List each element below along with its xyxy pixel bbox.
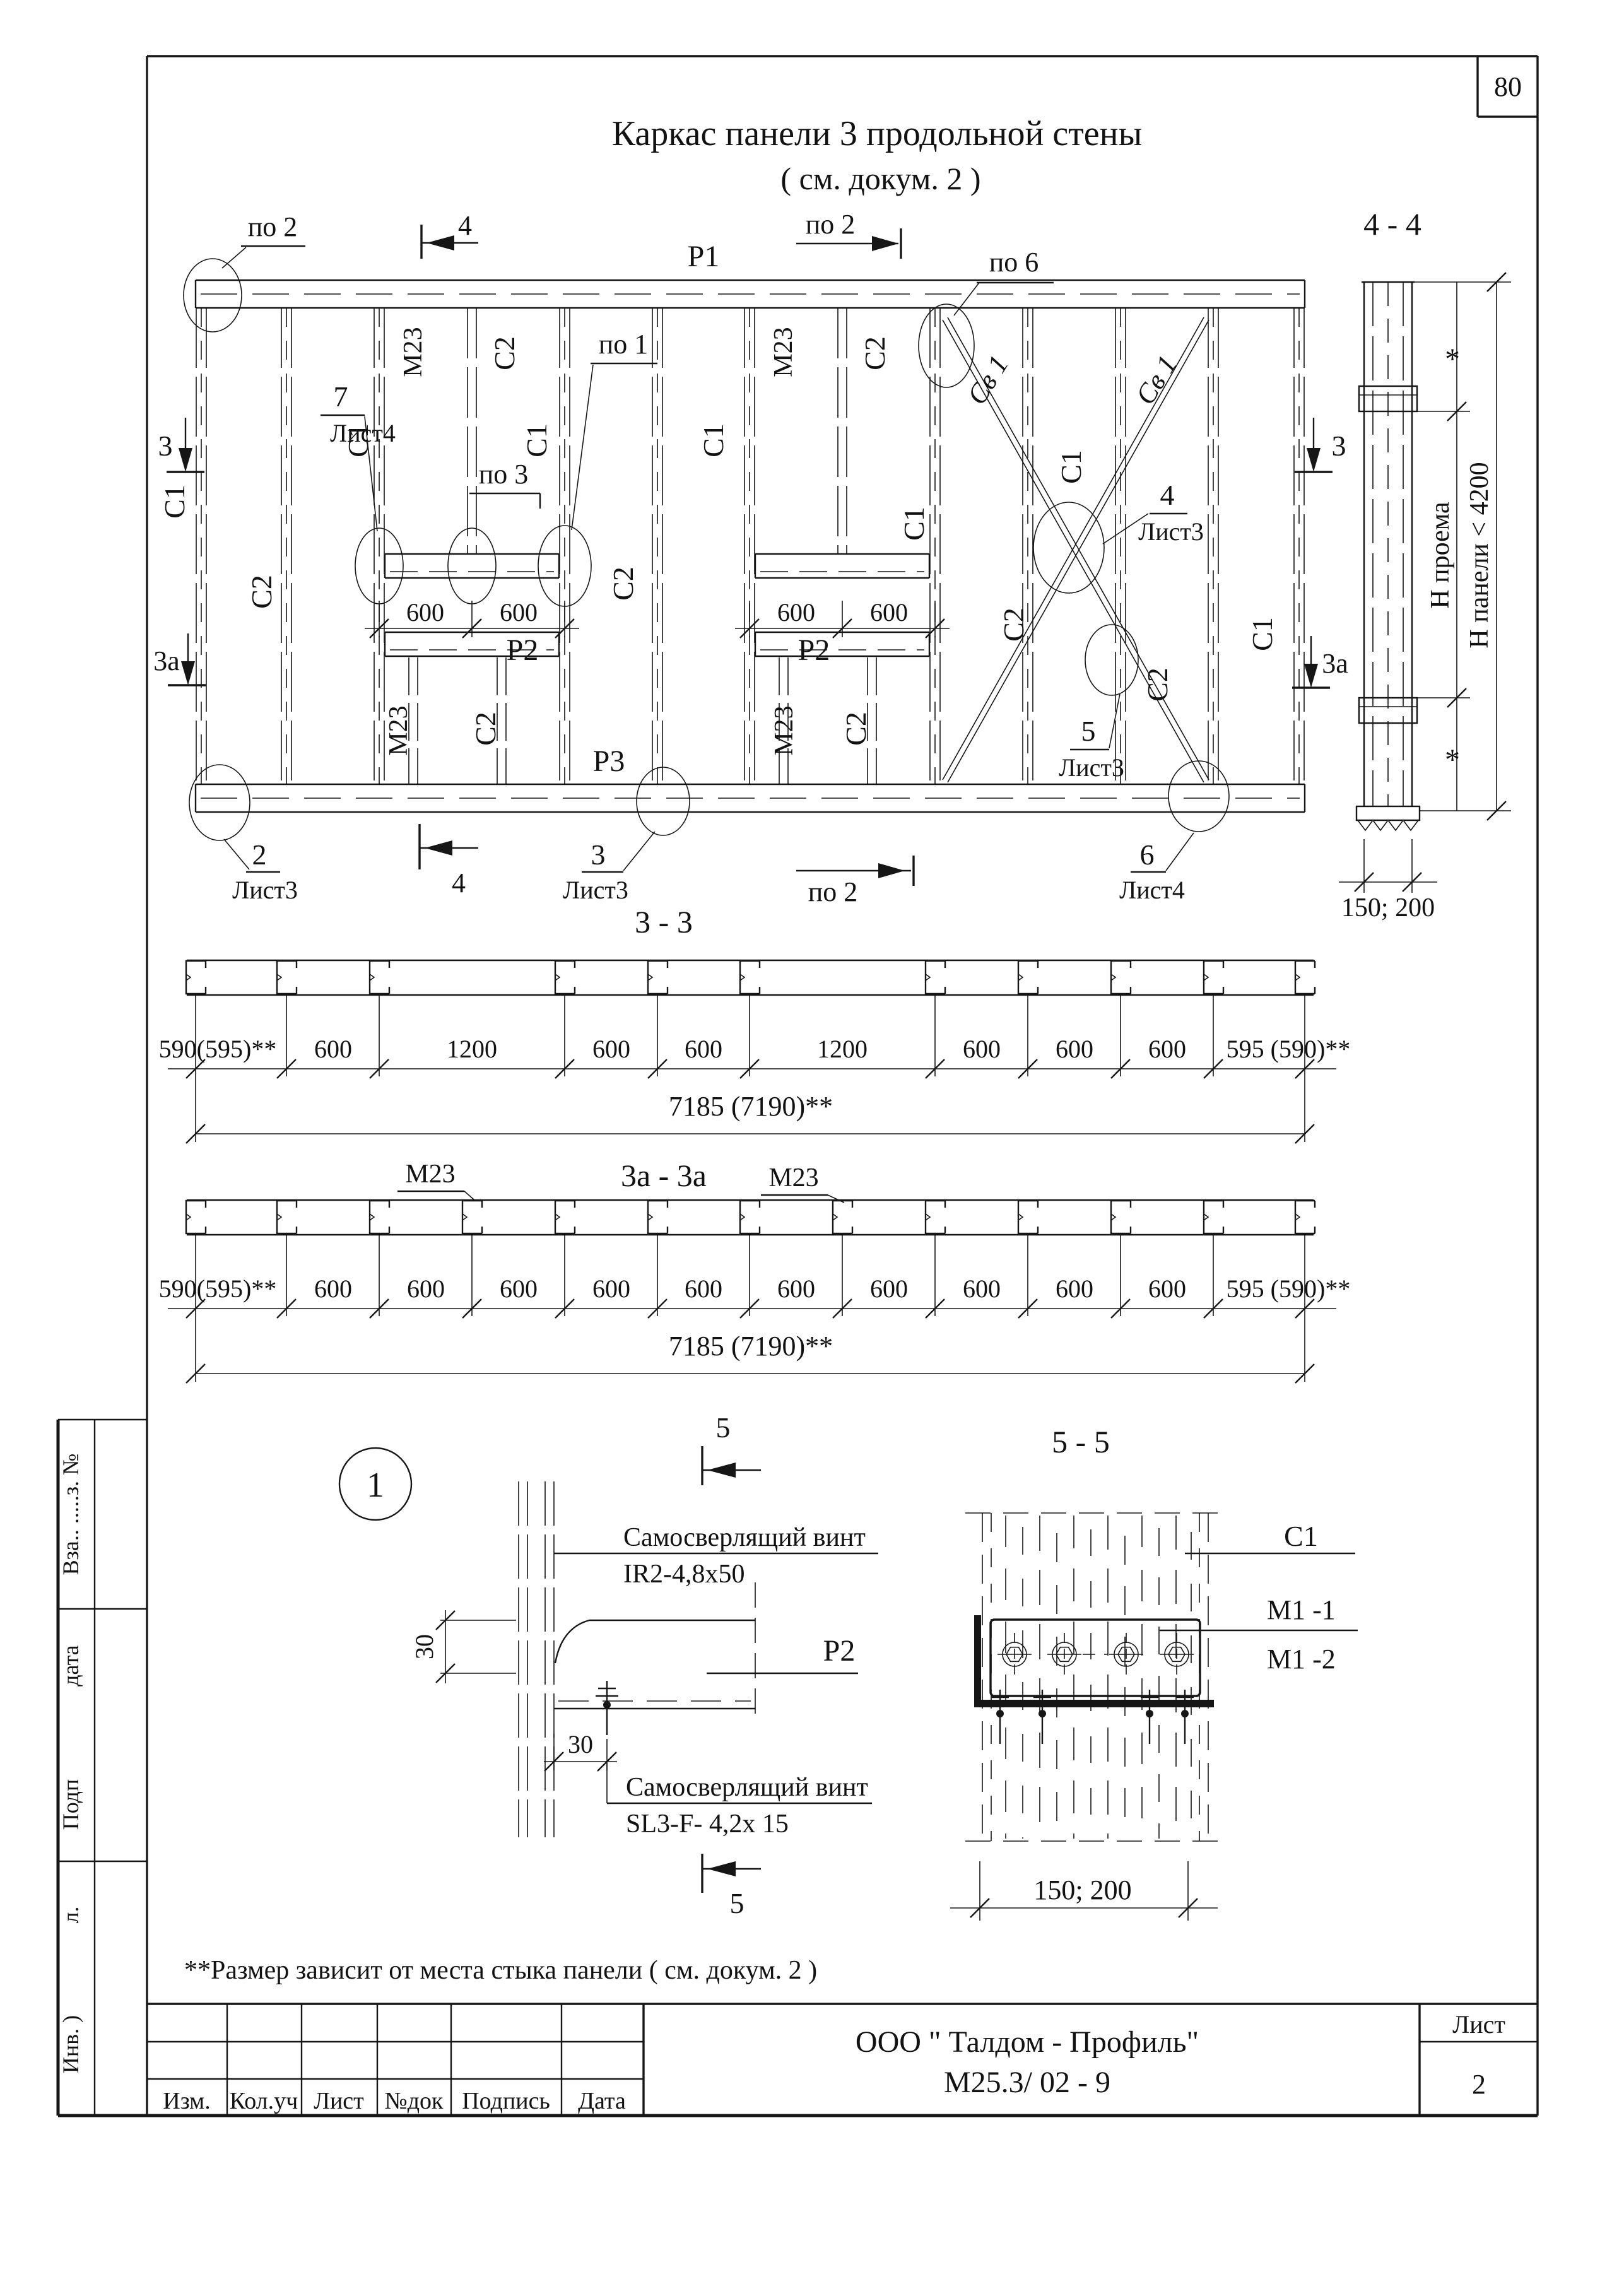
dim-chain: 600 [777, 1275, 815, 1303]
stamp-col-izm: Изм. [163, 2088, 210, 2114]
label-m23: М23 [399, 327, 428, 377]
footnote: **Размер зависит от места стыка панели (… [184, 1956, 817, 1985]
panel-plan: 600 600 600 600 [153, 209, 1348, 907]
sheet-number-value: 2 [1472, 2069, 1486, 2100]
detail-1-bubble: 1 [367, 1466, 384, 1505]
label-p3: Р3 [593, 745, 625, 778]
label-c2: С2 [859, 336, 891, 370]
node-6: 6 [1140, 839, 1155, 871]
sidebar-stamp-column: Вза.. .....з. № дата Подп л. Инв. ) [58, 1420, 147, 2116]
dim-chain: 600 [500, 1275, 538, 1303]
sheet-number-box: 80 [1478, 56, 1538, 117]
node-6-sheet: Лист4 [1119, 876, 1185, 904]
section-5-5-title: 5 - 5 [1052, 1424, 1110, 1459]
dim-150-200: 150; 200 [1341, 893, 1435, 922]
label-c2: С2 [1141, 668, 1174, 702]
screw-label-top-2: IR2-4,8х50 [623, 1560, 745, 1589]
label-m23: М23 [770, 705, 799, 755]
dim-chain: 600 [314, 1275, 352, 1303]
marker-4-label: 4 [452, 868, 466, 898]
label-c2: С2 [488, 336, 521, 370]
marker-5-label: 5 [730, 1887, 744, 1919]
label-p1: Р1 [688, 240, 720, 273]
sheet-label: Лист [1452, 2010, 1505, 2039]
dim-opening-height: Н проема [1426, 502, 1455, 609]
section-4-4-title: 4 - 4 [1363, 206, 1421, 242]
dim-chain: 600 [685, 1035, 722, 1063]
top-rail-p1 [196, 280, 1305, 308]
dim-panel-height: Н панели < 4200 [1465, 462, 1494, 648]
company-name: ООО " Талдом - Профиль" [856, 2025, 1199, 2059]
drawing-sheet: 80 Каркас панели 3 продольной стены ( см… [0, 0, 1624, 2296]
detail-1: 1 5 Самосверлящий винт IR2-4,8х50 Р2 30 [339, 1411, 878, 1919]
section-3a-3a-title: 3а - 3а [621, 1158, 707, 1193]
label-c1: С1 [158, 485, 191, 519]
sidebar-podp: Подп [58, 1779, 83, 1830]
label-m23: М23 [768, 1163, 818, 1192]
label-c1: С1 [1284, 1520, 1318, 1552]
marker-po3-label: по 3 [479, 459, 529, 490]
marker-po2-label: по 2 [806, 209, 856, 240]
dim-chain: 595 (590)** [1227, 1035, 1351, 1063]
label-c2: С2 [469, 712, 502, 746]
member-labels: С1 С1 С1 С1 С1 С1 С1 С2 С2 С2 С2 С2 С2 С… [158, 240, 1278, 778]
marker-po2-label: по 2 [248, 211, 298, 242]
label-c1: С1 [1055, 450, 1087, 484]
label-brace-sv1: Св 1 [961, 350, 1015, 410]
title-line2: ( см. докум. 2 ) [780, 161, 980, 196]
dim-30: 30 [568, 1730, 593, 1758]
dim-600: 600 [777, 598, 815, 627]
bottom-rail-p3 [196, 784, 1305, 812]
marker-5-label: 5 [716, 1411, 731, 1444]
dim-chain: 600 [407, 1275, 445, 1303]
dim-total: 7185 (7190)** [669, 1331, 833, 1362]
document-number: М25.3/ 02 - 9 [944, 2066, 1110, 2099]
sidebar-data: дата [58, 1645, 83, 1687]
dim-chain: 590(595)** [159, 1035, 277, 1063]
node-5: 5 [1081, 715, 1096, 747]
dim-chain: 1200 [817, 1035, 868, 1063]
label-c2: С2 [997, 608, 1030, 642]
drawing-title: Каркас панели 3 продольной стены ( см. д… [612, 114, 1142, 196]
stamp-col-podpis: Подпись [462, 2088, 550, 2114]
node-3-sheet: Лист3 [563, 876, 628, 904]
sidebar-vzam: Вза.. .....з. № [58, 1454, 83, 1575]
marker-po1-label: по 1 [599, 329, 649, 360]
title-line1: Каркас панели 3 продольной стены [612, 114, 1142, 153]
marker-po6-label: по 6 [989, 247, 1039, 278]
dim-chain: 600 [685, 1275, 722, 1303]
label-m1-2: М1 -2 [1267, 1644, 1336, 1675]
dim-600: 600 [870, 598, 908, 627]
label-c2: С2 [245, 575, 278, 609]
marker-3a-label: 3а [153, 645, 180, 676]
screw-label-bottom-1: Самосверлящий винт [626, 1773, 868, 1802]
node-2-sheet: Лист3 [232, 876, 298, 904]
label-c1: С1 [898, 507, 930, 541]
dim-chain: 600 [1056, 1035, 1093, 1063]
screw-label-bottom-2: SL3-F- 4,2х 15 [626, 1810, 789, 1839]
dim-chain: 600 [592, 1275, 630, 1303]
screw-label-top-1: Самосверлящий винт [623, 1523, 866, 1552]
node-4-sheet: Лист3 [1138, 517, 1204, 546]
dim-chain: 590(595)** [159, 1275, 277, 1303]
marker-3a-label: 3а [1322, 648, 1348, 679]
label-c1: С1 [697, 423, 729, 457]
stamp-col-data: Дата [578, 2088, 626, 2114]
node-3: 3 [591, 839, 606, 871]
dim-chain: 595 (590)** [1227, 1275, 1351, 1303]
dim-600: 600 [500, 598, 538, 627]
section-3a-3a: 3а - 3а М23 М23 [159, 1158, 1351, 1383]
dim-chain: 600 [1056, 1275, 1093, 1303]
section-3a-3a-dims: 590(595)** 600 600 600 600 600 600 600 6… [159, 1235, 1351, 1383]
label-m23: М23 [384, 705, 413, 755]
dim-chain: 600 [1148, 1275, 1186, 1303]
label-p2: Р2 [507, 633, 539, 667]
stamp-col-koluch: Кол.уч [230, 2088, 298, 2114]
detail-p2-label: Р2 [823, 1634, 856, 1668]
node-2: 2 [252, 839, 267, 871]
dim-30: 30 [410, 1634, 438, 1659]
node-5-sheet: Лист3 [1059, 753, 1124, 782]
section-3-3: 3 - 3 590(595)** 600 1200 600 [159, 904, 1351, 1143]
dim-chain: 600 [1148, 1035, 1186, 1063]
section-4-4: 4 - 4 Н проема Н панели < 4200 * * 150; … [1339, 206, 1511, 922]
dim-chain: 600 [963, 1275, 1001, 1303]
section-3-3-dims: 590(595)** 600 1200 600 600 1200 600 600… [159, 995, 1351, 1143]
section-5-5: 5 - 5 С1 [950, 1424, 1358, 1921]
panel-hatch [1006, 1516, 1191, 1839]
sidebar-inv: Инв. ) [58, 2015, 83, 2073]
dim-chain: 600 [314, 1035, 352, 1063]
dim-600: 600 [406, 598, 444, 627]
stamp-col-list: Лист [314, 2088, 364, 2114]
dim-chain: 600 [870, 1275, 908, 1303]
dim-chain: 600 [963, 1035, 1001, 1063]
title-block: Изм. Кол.уч Лист №док Подпись Дата ООО "… [147, 2004, 1538, 2116]
label-p2: Р2 [798, 633, 830, 667]
label-m1-1: М1 -1 [1267, 1594, 1336, 1625]
marker-4-label: 4 [458, 210, 472, 241]
dim-chain: 1200 [447, 1035, 497, 1063]
node-7-sheet: Лист4 [330, 419, 396, 447]
dim-150-200: 150; 200 [1033, 1875, 1131, 1905]
label-c1: С1 [521, 423, 553, 457]
label-m23: М23 [769, 327, 798, 377]
asterisk-bottom: * [1445, 743, 1460, 777]
marker-po2-label: по 2 [808, 876, 858, 907]
dim-total: 7185 (7190)** [669, 1091, 833, 1122]
sidebar-l: л. [58, 1907, 83, 1924]
asterisk-top: * [1445, 343, 1460, 376]
section-3-3-title: 3 - 3 [635, 904, 693, 939]
marker-3-label: 3 [1332, 430, 1346, 462]
dim-chain: 600 [592, 1035, 630, 1063]
label-c2: С2 [840, 712, 872, 746]
node-7: 7 [334, 380, 348, 413]
node-4: 4 [1160, 479, 1175, 511]
label-c1: С1 [1246, 617, 1278, 651]
label-c2: С2 [607, 567, 639, 601]
sheet-number: 80 [1494, 71, 1522, 102]
marker-3-label: 3 [158, 430, 173, 462]
stamp-col-ndok: №док [384, 2088, 444, 2114]
label-m23: М23 [405, 1160, 455, 1189]
